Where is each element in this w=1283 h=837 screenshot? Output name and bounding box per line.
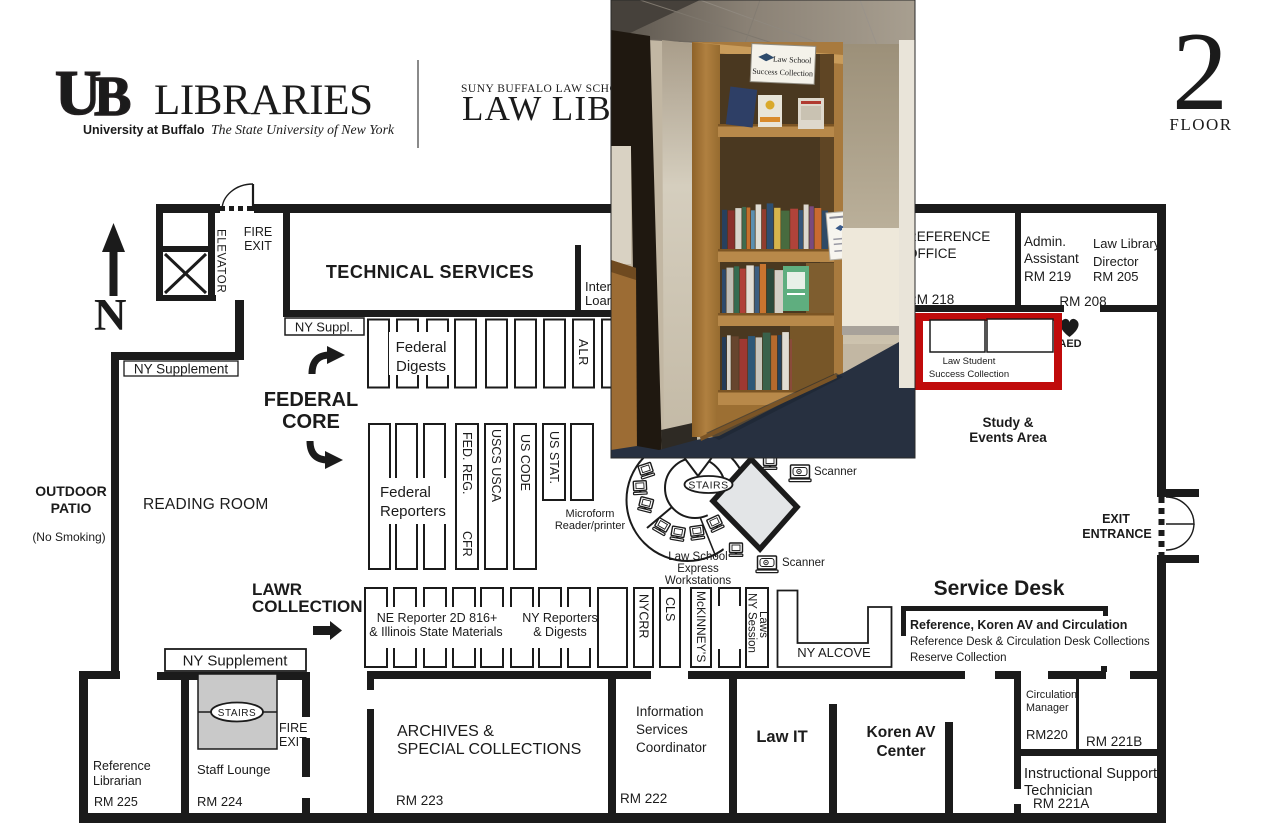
svg-text:RM 221B: RM 221B	[1086, 734, 1142, 749]
svg-text:FEDERAL: FEDERAL	[264, 389, 358, 411]
svg-text:STAIRS: STAIRS	[218, 708, 256, 719]
svg-text:COLLECTION: COLLECTION	[252, 597, 363, 616]
svg-text:Laws: Laws	[757, 611, 769, 638]
svg-text:Scanner: Scanner	[814, 466, 857, 478]
svg-text:US STAT.: US STAT.	[547, 431, 561, 484]
svg-text:Microform: Microform	[566, 508, 615, 520]
svg-text:EXIT: EXIT	[279, 735, 307, 749]
svg-text:Success Collection: Success Collection	[929, 369, 1009, 380]
svg-text:Express: Express	[677, 563, 719, 575]
svg-text:US CODE: US CODE	[518, 434, 532, 491]
svg-text:NY ALCOVE: NY ALCOVE	[797, 645, 871, 660]
svg-text:NY Reporters: NY Reporters	[522, 611, 598, 625]
svg-text:RM 222: RM 222	[620, 791, 667, 806]
svg-text:STAIRS: STAIRS	[688, 480, 728, 492]
svg-text:Events Area: Events Area	[969, 430, 1047, 445]
svg-text:Service Desk: Service Desk	[934, 577, 1065, 600]
svg-text:CLS: CLS	[663, 597, 677, 621]
svg-text:University at Buffalo: University at Buffalo	[83, 123, 205, 137]
svg-text:NY Supplement: NY Supplement	[134, 362, 229, 377]
svg-text:Law School: Law School	[773, 55, 813, 66]
svg-text:ENTRANCE: ENTRANCE	[1082, 527, 1151, 541]
svg-text:RM 223: RM 223	[396, 793, 443, 808]
svg-text:Law IT: Law IT	[756, 728, 807, 746]
svg-text:Reserve Collection: Reserve Collection	[910, 652, 1007, 664]
svg-text:FIRE: FIRE	[279, 721, 307, 735]
svg-text:Center: Center	[876, 743, 925, 760]
svg-text:NY Session: NY Session	[746, 593, 758, 653]
svg-text:RM 224: RM 224	[197, 794, 243, 809]
svg-text:ARCHIVES &: ARCHIVES &	[397, 723, 494, 740]
svg-text:NYCRR: NYCRR	[637, 594, 651, 638]
svg-text:LIBRARIES: LIBRARIES	[154, 77, 373, 124]
svg-text:Coordinator: Coordinator	[636, 740, 707, 755]
svg-text:Instructional Support: Instructional Support	[1024, 766, 1157, 782]
svg-text:Librarian: Librarian	[93, 774, 142, 788]
svg-text:Reader/printer: Reader/printer	[555, 520, 626, 532]
svg-text:CORE: CORE	[282, 411, 340, 433]
svg-text:Workstations: Workstations	[665, 575, 732, 587]
svg-text:Reporters: Reporters	[380, 503, 446, 520]
svg-text:Law Student: Law Student	[943, 356, 996, 367]
svg-text:Reference Desk & Circulation D: Reference Desk & Circulation Desk Collec…	[910, 636, 1150, 648]
svg-text:Director: Director	[1093, 254, 1139, 269]
svg-text:NE Reporter 2D 816+: NE Reporter 2D 816+	[377, 611, 498, 625]
svg-text:Scanner: Scanner	[782, 557, 825, 569]
svg-text:B: B	[94, 66, 131, 128]
svg-text:RM 205: RM 205	[1093, 269, 1139, 284]
svg-text:The State University of New Yo: The State University of New York	[211, 122, 395, 137]
svg-text:N: N	[94, 290, 127, 340]
svg-text:CFR: CFR	[460, 531, 474, 557]
svg-text:RM220: RM220	[1026, 727, 1068, 742]
svg-text:& Digests: & Digests	[533, 625, 587, 639]
svg-text:NY Suppl.: NY Suppl.	[295, 320, 353, 335]
svg-text:TECHNICAL SERVICES: TECHNICAL SERVICES	[326, 262, 534, 282]
svg-text:READING ROOM: READING ROOM	[143, 496, 269, 513]
svg-text:OUTDOOR: OUTDOOR	[35, 483, 107, 499]
svg-text:Federal: Federal	[396, 339, 447, 356]
svg-text:REFERENCE: REFERENCE	[907, 229, 990, 244]
svg-text:Koren AV: Koren AV	[867, 724, 937, 741]
svg-text:FIRE: FIRE	[244, 225, 272, 239]
svg-text:Admin.: Admin.	[1024, 234, 1066, 249]
svg-text:SPECIAL COLLECTIONS: SPECIAL COLLECTIONS	[397, 741, 581, 758]
svg-text:RM 221A: RM 221A	[1033, 796, 1089, 811]
svg-text:FED. REG.: FED. REG.	[460, 432, 474, 495]
svg-text:Loan: Loan	[585, 293, 614, 308]
svg-text:Law School: Law School	[668, 551, 727, 563]
svg-text:ELEVATOR: ELEVATOR	[215, 229, 227, 293]
svg-text:Services: Services	[636, 722, 688, 737]
svg-text:EXIT: EXIT	[244, 239, 272, 253]
svg-text:Information: Information	[636, 704, 704, 719]
svg-text:PATIO: PATIO	[51, 500, 92, 516]
svg-text:USCS USCA: USCS USCA	[489, 429, 503, 503]
svg-text:Study &: Study &	[982, 415, 1033, 430]
svg-text:RM 225: RM 225	[94, 795, 138, 809]
svg-text:Assistant: Assistant	[1024, 251, 1079, 266]
svg-text:Circulation: Circulation	[1026, 689, 1077, 701]
svg-text:RM 208: RM 208	[1059, 294, 1106, 309]
svg-text:Manager: Manager	[1026, 702, 1069, 714]
svg-text:Law Library: Law Library	[1093, 236, 1161, 251]
svg-text:Federal: Federal	[380, 484, 431, 501]
svg-text:ALR: ALR	[576, 339, 590, 366]
svg-text:EXIT: EXIT	[1102, 512, 1130, 526]
svg-text:Reference: Reference	[93, 759, 151, 773]
svg-text:& Illinois State Materials: & Illinois State Materials	[369, 625, 502, 639]
svg-text:FLOOR: FLOOR	[1169, 115, 1232, 134]
svg-text:Staff Lounge: Staff Lounge	[197, 762, 271, 777]
svg-text:McKINNEY’S: McKINNEY’S	[694, 591, 708, 662]
svg-text:Digests: Digests	[396, 358, 446, 375]
svg-text:(No Smoking): (No Smoking)	[32, 530, 105, 544]
svg-text:RM 219: RM 219	[1024, 269, 1071, 284]
svg-text:NY Supplement: NY Supplement	[183, 653, 289, 670]
svg-text:Reference, Koren AV and Circul: Reference, Koren AV and Circulation	[910, 618, 1127, 632]
